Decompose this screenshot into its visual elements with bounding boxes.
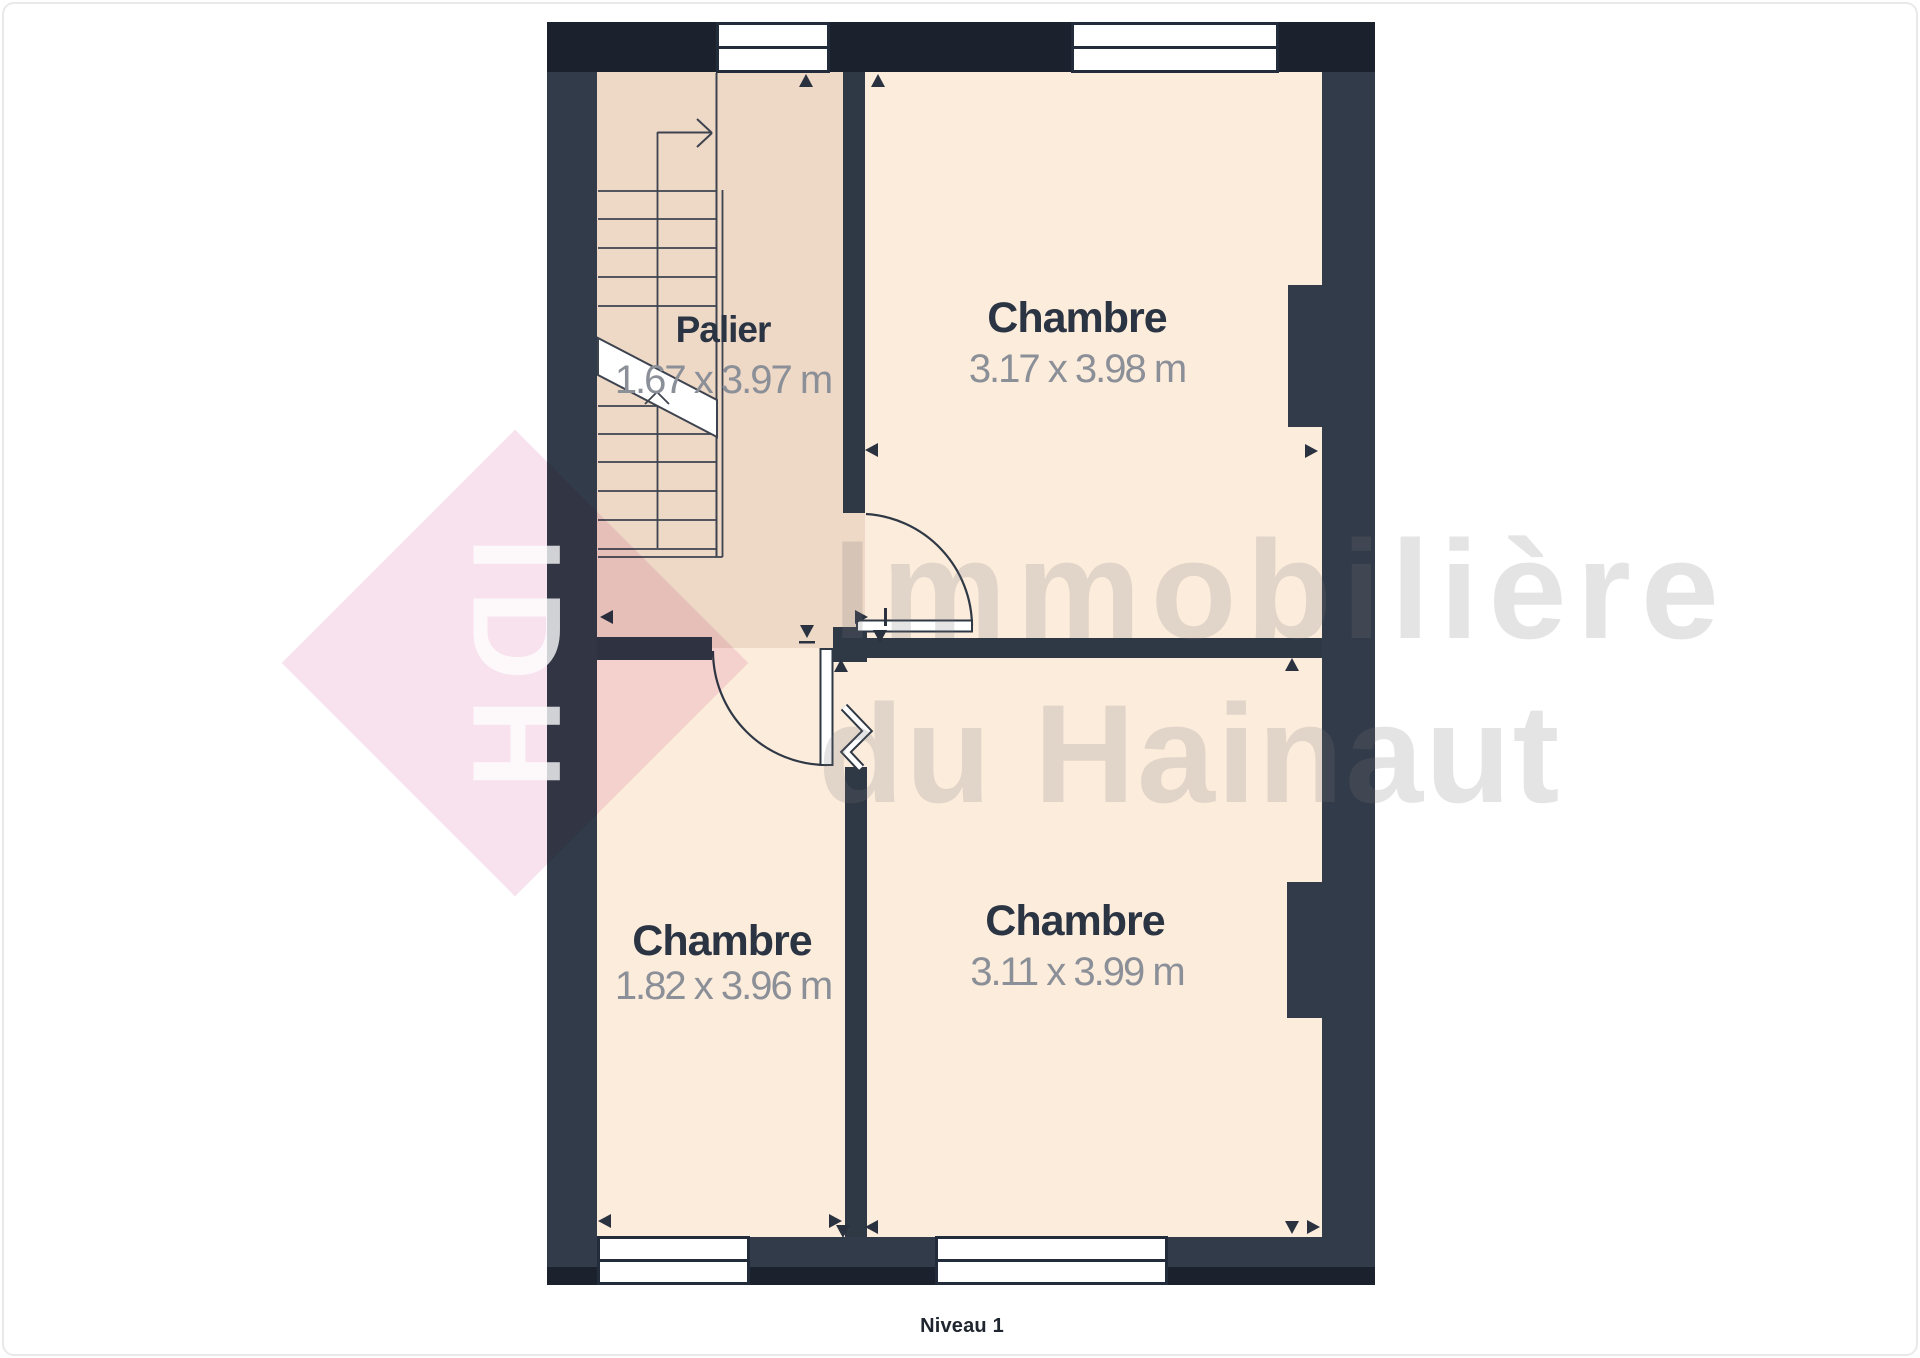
window-bottom-left bbox=[597, 1236, 750, 1285]
watermark-name-line1: Immobilière bbox=[833, 520, 1729, 660]
room-dims-bedroom-top-right: 3.17 x 3.98 m bbox=[969, 349, 1185, 389]
floorplan-page: Palier 1.67 x 3.97 m Chambre 3.17 x 3.98… bbox=[0, 0, 1920, 1358]
window-mullion bbox=[599, 1259, 748, 1262]
room-dims-palier: 1.67 x 3.97 m bbox=[615, 360, 831, 400]
room-label-bedroom-bottom-left: Chambre bbox=[632, 920, 811, 963]
chimney-breast-upper bbox=[1288, 285, 1322, 427]
level-caption: Niveau 1 bbox=[920, 1315, 1004, 1338]
wall-bedrooms-vertical bbox=[845, 767, 867, 1237]
watermark-logo: IDH bbox=[454, 537, 579, 806]
window-mullion bbox=[718, 46, 828, 49]
window-top-left bbox=[716, 22, 830, 73]
window-bottom-right bbox=[935, 1236, 1168, 1285]
room-dims-bedroom-bottom-left: 1.82 x 3.96 m bbox=[615, 966, 831, 1006]
watermark-name-line2: du Hainaut bbox=[818, 684, 1561, 824]
room-label-bedroom-top-right: Chambre bbox=[987, 297, 1166, 340]
room-dims-bedroom-bottom-right: 3.11 x 3.99 m bbox=[970, 952, 1183, 992]
window-mullion bbox=[1073, 46, 1277, 49]
chimney-breast-lower bbox=[1287, 882, 1322, 1018]
room-label-bedroom-bottom-right: Chambre bbox=[985, 900, 1164, 943]
wall-divider-palier-bedroom bbox=[843, 72, 865, 513]
window-mullion bbox=[937, 1259, 1166, 1262]
room-label-palier: Palier bbox=[676, 311, 771, 348]
window-top-right bbox=[1071, 22, 1279, 73]
